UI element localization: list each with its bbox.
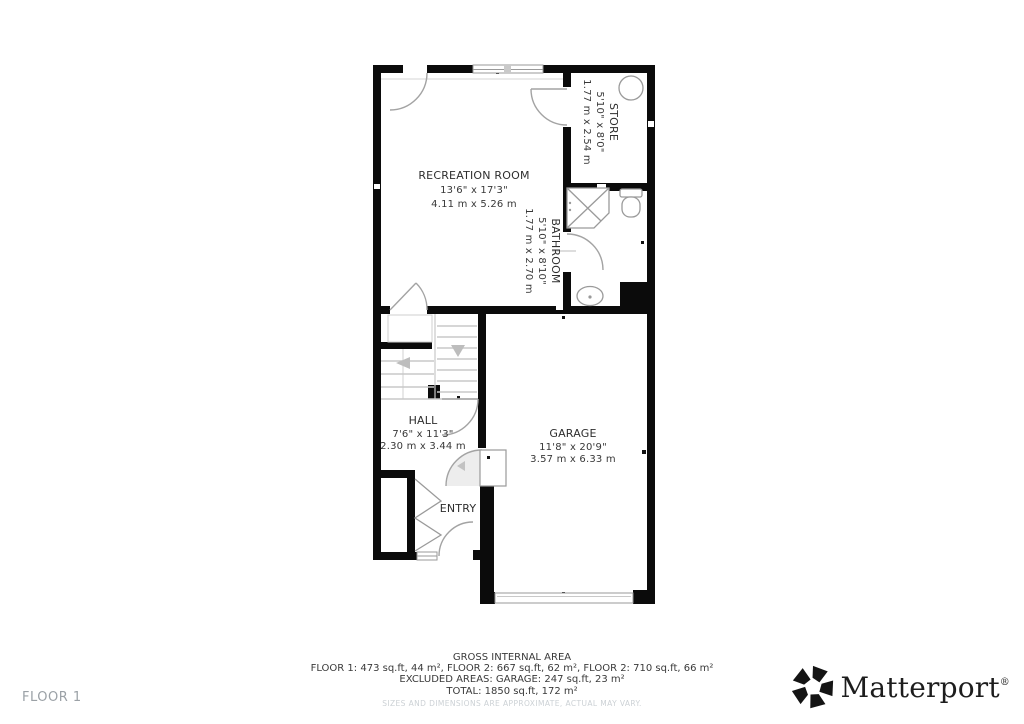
floor-plan: RECREATION ROOM 13'6" x 17'3" 4.11 m x 5… <box>0 0 1024 724</box>
label-hall-metric: 2.30 m x 3.44 m <box>380 441 466 452</box>
door-hall-garage <box>446 450 506 486</box>
stair-landing <box>388 315 432 342</box>
toilet-tank <box>620 189 642 197</box>
door-store <box>531 89 567 125</box>
label-garage-imperial: 11'8" x 20'9" <box>539 442 607 453</box>
label-garage-metric: 3.57 m x 6.33 m <box>530 454 616 465</box>
matterport-pinwheel-icon <box>790 664 836 710</box>
matterport-logo: Matterport® <box>790 664 1010 710</box>
label-store-imperial: 5'10" x 8'0" <box>594 91 605 152</box>
label-recreation-name: RECREATION ROOM <box>418 169 529 182</box>
label-garage-name: GARAGE <box>549 427 596 440</box>
label-recreation-imperial: 13'6" x 17'3" <box>440 185 508 196</box>
label-entry-name: ENTRY <box>440 502 477 515</box>
door-bathroom <box>567 234 603 270</box>
label-store-metric: 1.77 m x 2.54 m <box>581 79 592 165</box>
label-store-name: STORE <box>607 103 620 141</box>
gross-internal-area-title: GROSS INTERNAL AREA <box>0 652 1024 663</box>
toilet-bowl <box>622 197 640 217</box>
garage-door <box>495 593 633 603</box>
label-recreation-metric: 4.11 m x 5.26 m <box>431 199 517 210</box>
brand-name: Matterport <box>841 671 1000 704</box>
matterport-wordmark: Matterport® <box>841 671 1010 704</box>
floor-number-label: FLOOR 1 <box>22 690 82 705</box>
label-hall-name: HALL <box>409 414 439 427</box>
page: RECREATION ROOM 13'6" x 17'3" 4.11 m x 5… <box>0 0 1024 724</box>
label-bathroom-name: BATHROOM <box>549 218 562 283</box>
registered-mark: ® <box>1000 677 1010 688</box>
door-entry-front <box>439 522 473 556</box>
water-tank <box>619 76 643 100</box>
label-bathroom-metric: 1.77 m x 2.70 m <box>523 208 534 294</box>
label-bathroom-imperial: 5'10" x 8'10" <box>536 217 547 285</box>
door-recroom-bottom <box>390 283 427 310</box>
closet-bifold-doors <box>415 479 441 551</box>
label-hall-imperial: 7'6" x 11'3" <box>392 429 453 440</box>
stair-arrow-down <box>451 345 465 357</box>
